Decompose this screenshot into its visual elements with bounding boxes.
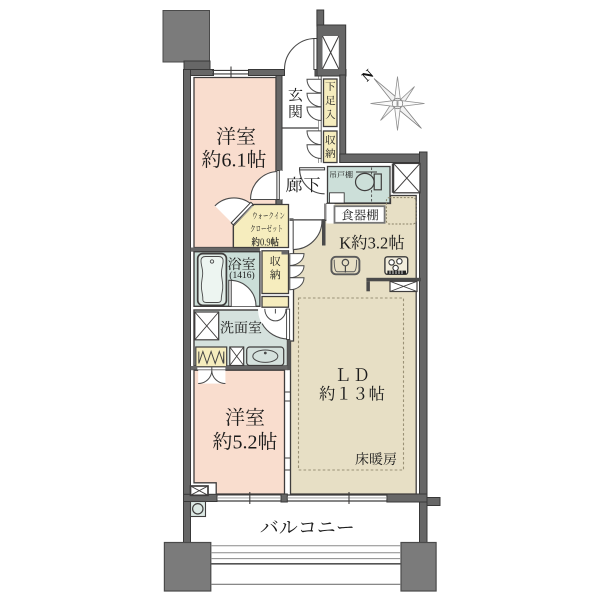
svg-text:5.2: 5.2: [233, 432, 258, 454]
svg-text:0.9: 0.9: [260, 238, 271, 249]
svg-text:6.1: 6.1: [222, 150, 247, 172]
svg-text:(1416): (1416): [229, 270, 254, 281]
svg-text:K: K: [339, 234, 351, 253]
svg-text:3.2: 3.2: [368, 234, 389, 253]
